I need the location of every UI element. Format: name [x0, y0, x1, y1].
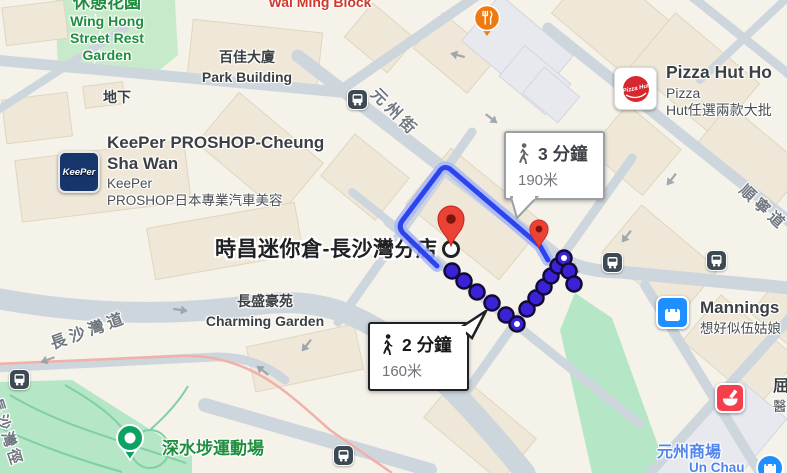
- route-layer[interactable]: [0, 0, 787, 473]
- route-distance: 160米: [382, 360, 452, 381]
- bubble-tail: [459, 310, 489, 340]
- route-waypoint-dot: [561, 255, 567, 261]
- secondary-pin[interactable]: [526, 217, 552, 251]
- watsons-pharmacy-icon[interactable]: [715, 383, 745, 413]
- un-chau-shopping-icon[interactable]: [753, 453, 787, 473]
- keeper-logo[interactable]: KeePer: [58, 151, 100, 193]
- walking-person-icon: [380, 334, 395, 355]
- route-time-bubble-b[interactable]: 2 分鐘 160米: [368, 322, 469, 391]
- walking-person-icon: [516, 143, 531, 164]
- pizza-hut-logo[interactable]: Pizza Hut: [614, 67, 657, 110]
- destination-pin[interactable]: [431, 202, 471, 250]
- bubble-tail: [510, 196, 540, 220]
- restaurant-icon[interactable]: [473, 4, 501, 38]
- route-time-bubble-a[interactable]: 3 分鐘 190米: [504, 131, 605, 200]
- map-canvas[interactable]: 元州街 長沙灣道 順寧道 長沙灣徑 休憩花園 Wing Hong Street …: [0, 0, 787, 473]
- route-distance: 190米: [518, 169, 588, 190]
- route-duration: 2 分鐘: [402, 332, 452, 357]
- route-duration: 3 分鐘: [538, 141, 588, 166]
- route-waypoint-dot: [514, 321, 520, 327]
- mannings-icon[interactable]: [656, 296, 689, 329]
- sports-ground-icon[interactable]: [112, 423, 148, 463]
